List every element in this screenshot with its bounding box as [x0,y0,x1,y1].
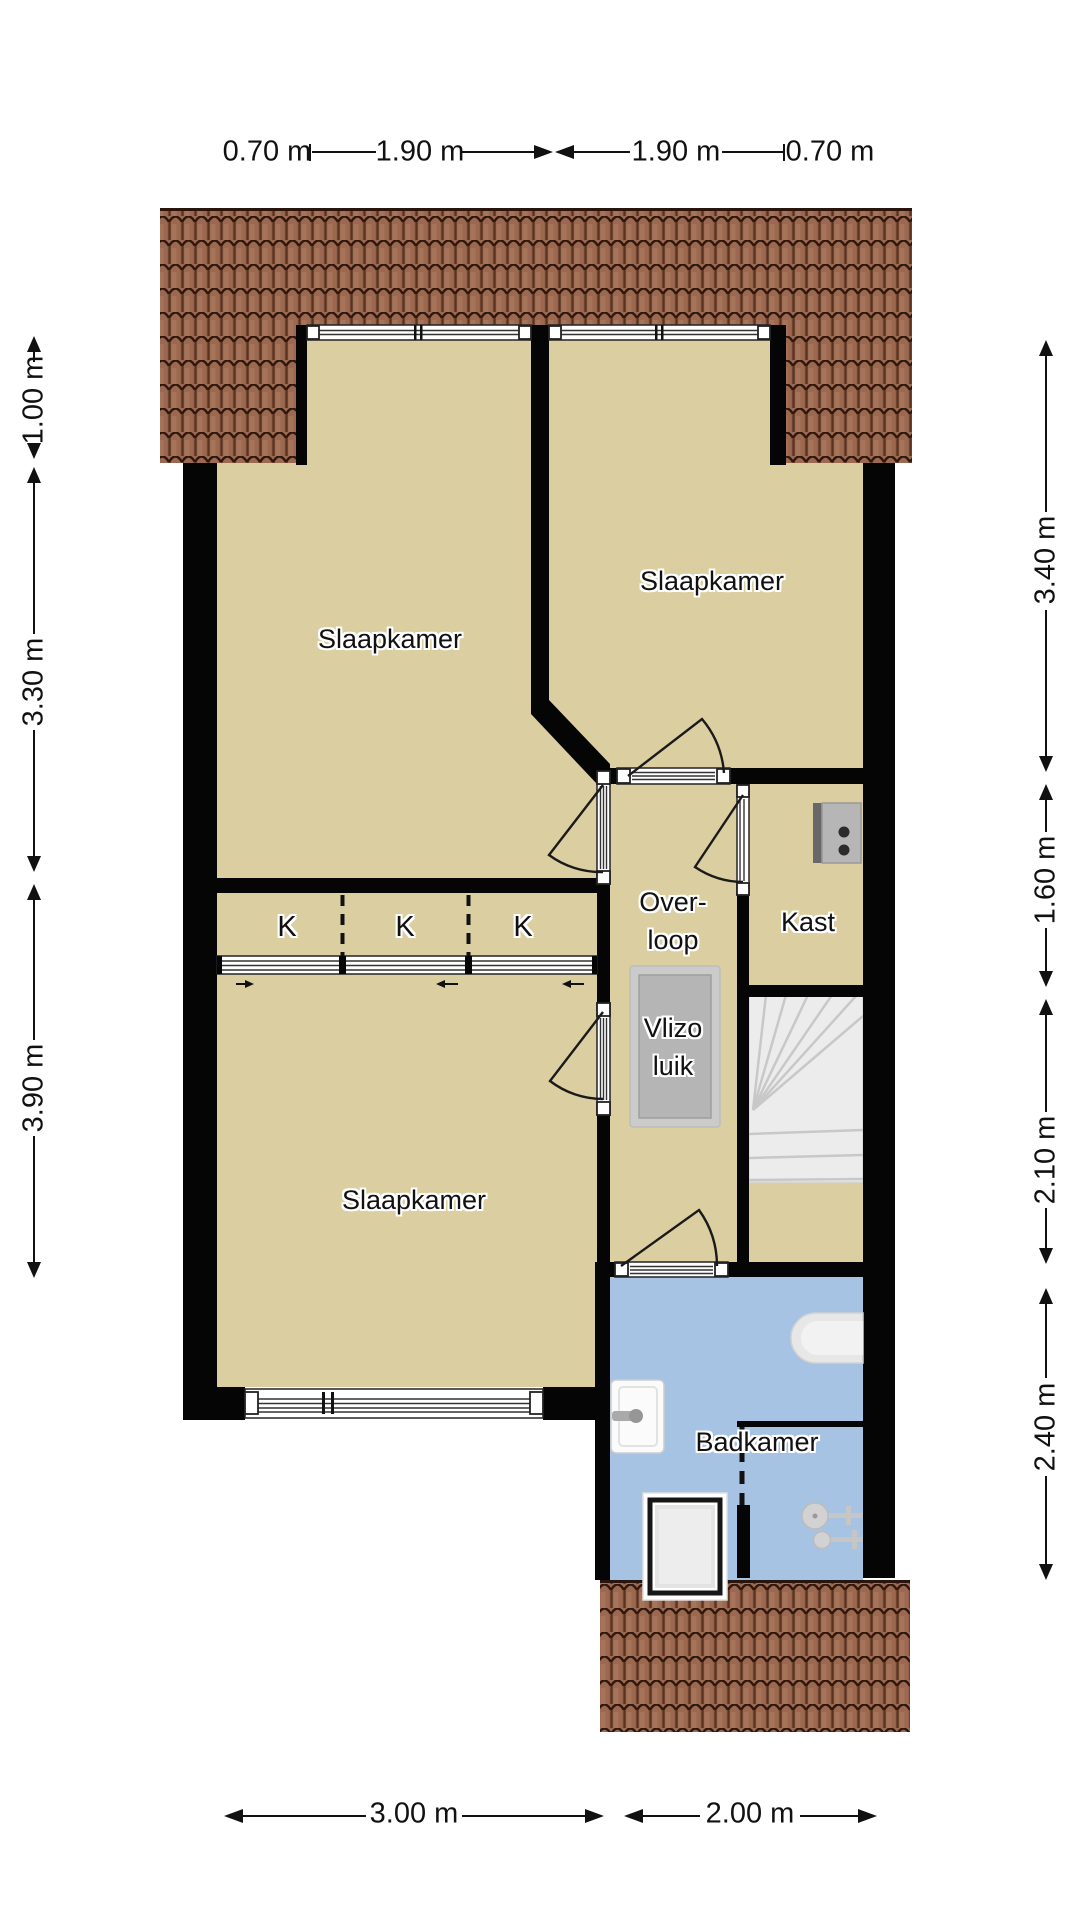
floor-bedroom-top-right [549,463,863,782]
dim-right-first: 3.40 m [1030,516,1063,605]
dim-bottom-right: 2.00 m [706,1798,795,1831]
closet-marker-text: K [513,911,532,943]
wall-toilet-partition-stub [737,1505,750,1578]
label-attic-hatch: Vlizoluik [644,1009,703,1085]
dim-left-upper: 1.00 m [18,356,51,445]
room-label-landing: Over-loop [639,883,707,959]
closet-marker-1: K [277,908,296,946]
dim-text: 3.40 m [1030,516,1062,605]
wall-top-right-corner [770,325,786,465]
dim-text: 0.70 m [786,136,875,168]
wall-between-top-bedrooms [531,325,549,702]
wall-bathroom-west [595,1277,610,1580]
dim-top-right-outer: 0.70 m [786,136,875,169]
door-top-left-bedroom [597,771,610,884]
dim-text: 1.90 m [376,136,465,168]
window-top-left [307,325,531,340]
closet-sliding-track [217,956,597,974]
dim-text: 2.40 m [1030,1383,1062,1472]
wall-top-left-corner [296,325,307,465]
room-label-text: Slaapkamer [640,566,784,596]
floorplan-drawing [0,0,1080,1920]
dim-text: 1.00 m [18,356,50,445]
stairs-icon [749,995,863,1182]
room-label-closet: Kast [781,903,835,941]
dim-text: 2.00 m [706,1798,795,1830]
room-label-text: loop [647,925,698,955]
closet-marker-3: K [513,908,532,946]
dim-top-left-inner: 1.90 m [376,136,465,169]
bathtub-icon [791,1313,863,1363]
room-label-text: Over- [639,887,707,917]
dim-text: 3.30 m [18,638,50,727]
dim-right-fourth: 2.40 m [1030,1383,1063,1472]
floor-bedroom-top-right-upper [549,340,770,463]
room-label-text: Badkamer [695,1427,818,1457]
room-label-text: Slaapkamer [318,624,462,654]
dim-text: 0.70 m [223,136,312,168]
wall-exterior-left [183,463,217,1420]
wall-closet-top [217,878,597,893]
dim-top-left-outer: 0.70 m [223,136,312,169]
room-label-text: Slaapkamer [342,1185,486,1215]
wall-closet-south [737,985,863,997]
room-label-bedroom-top-right: Slaapkamer [640,562,784,600]
closet-marker-text: K [395,911,414,943]
room-label-bathroom: Badkamer [695,1423,818,1461]
sink-icon [611,1380,664,1453]
wall-exterior-right [863,463,895,1578]
wall-bedroom-south-left [183,1387,245,1420]
room-label-text: Vlizo [644,1013,703,1043]
dim-text: 2.10 m [1030,1116,1062,1205]
dim-top-right-inner: 1.90 m [632,136,721,169]
dim-text: 3.00 m [370,1798,459,1830]
shower-cabin-icon [643,1493,727,1600]
dim-left-middle: 3.30 m [18,638,51,727]
electrical-panel-icon [813,803,861,863]
room-label-bedroom-top-left: Slaapkamer [318,620,462,658]
dim-bottom-left: 3.00 m [370,1798,459,1831]
dim-text: 1.60 m [1030,836,1062,925]
closet-marker-text: K [277,911,296,943]
dim-left-lower: 3.90 m [18,1044,51,1133]
door-bathroom [615,1262,728,1277]
closet-marker-2: K [395,908,414,946]
dim-text: 1.90 m [632,136,721,168]
window-bottom [245,1389,543,1418]
roof-bottom [600,1580,910,1732]
room-label-text: Kast [781,907,835,937]
wall-bedroom-south-right [543,1387,610,1420]
floor-bedroom-top-left-upper [307,340,531,463]
dim-right-second: 1.60 m [1030,836,1063,925]
floorplan-page: Slaapkamer Slaapkamer Slaapkamer K K K O… [0,0,1080,1920]
dim-right-third: 2.10 m [1030,1116,1063,1205]
window-top-right [549,325,770,340]
dim-text: 3.90 m [18,1044,50,1133]
room-label-bedroom-bottom: Slaapkamer [342,1181,486,1219]
room-label-text: luik [653,1051,694,1081]
